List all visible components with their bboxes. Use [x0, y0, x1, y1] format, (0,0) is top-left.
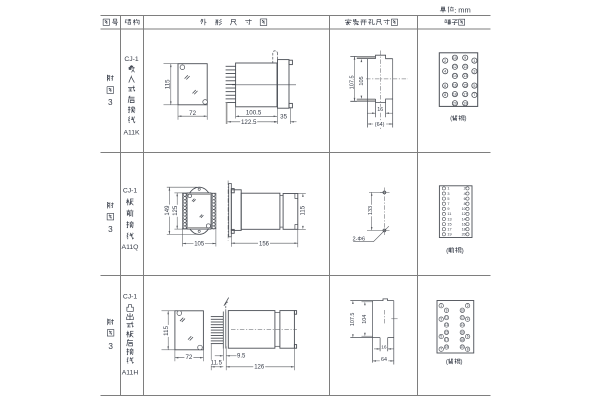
svg-text:2: 2	[464, 187, 466, 191]
svg-text:104: 104	[362, 315, 368, 324]
svg-text:18: 18	[461, 338, 465, 342]
svg-text:4: 4	[464, 192, 466, 196]
svg-text:(64): (64)	[375, 122, 385, 128]
svg-text:CJ-1: CJ-1	[124, 56, 139, 63]
svg-text:4: 4	[444, 69, 446, 73]
svg-text:72: 72	[185, 354, 192, 361]
svg-text:16: 16	[381, 345, 387, 351]
svg-text:126: 126	[254, 365, 265, 371]
svg-text:11: 11	[445, 316, 449, 320]
svg-text:11: 11	[447, 212, 451, 216]
svg-text:17: 17	[463, 92, 467, 96]
svg-text:11.5: 11.5	[211, 361, 223, 367]
svg-text:133: 133	[368, 206, 374, 215]
svg-text:15: 15	[445, 330, 449, 334]
svg-text:1: 1	[440, 304, 442, 308]
svg-text:16: 16	[461, 330, 465, 334]
svg-text:3: 3	[440, 317, 442, 321]
svg-text:1: 1	[447, 187, 449, 191]
svg-text:3: 3	[108, 98, 113, 107]
svg-text:18: 18	[462, 228, 466, 232]
svg-text:156: 156	[259, 241, 270, 247]
svg-text:12: 12	[462, 212, 466, 216]
svg-text:149: 149	[165, 205, 171, 216]
svg-text:4: 4	[467, 317, 469, 321]
svg-text:115: 115	[163, 325, 170, 335]
svg-text:7: 7	[473, 93, 475, 97]
svg-text:16: 16	[377, 107, 383, 113]
svg-text:2: 2	[467, 304, 469, 308]
svg-text:17: 17	[445, 338, 449, 342]
svg-text:A11H: A11H	[122, 369, 139, 376]
svg-text:10: 10	[462, 207, 466, 211]
svg-text:6: 6	[467, 335, 469, 339]
svg-text:19: 19	[463, 101, 467, 105]
svg-text:15: 15	[463, 83, 467, 87]
svg-text:11: 11	[463, 65, 467, 69]
svg-text:): )	[461, 247, 463, 254]
svg-text:9: 9	[447, 207, 449, 211]
svg-text:14: 14	[453, 74, 457, 78]
svg-text:6: 6	[444, 84, 446, 88]
svg-text:14: 14	[461, 323, 465, 327]
svg-text:1: 1	[473, 59, 475, 63]
svg-text::: :	[454, 6, 456, 15]
svg-text:72: 72	[189, 110, 196, 117]
svg-text:8: 8	[467, 347, 469, 351]
svg-text:10: 10	[461, 308, 465, 312]
svg-text:15: 15	[447, 222, 451, 226]
svg-text:107.5: 107.5	[350, 75, 356, 89]
svg-text:3: 3	[108, 342, 113, 351]
svg-text:107.5: 107.5	[350, 313, 356, 327]
svg-text:16: 16	[453, 83, 457, 87]
svg-text:5: 5	[440, 335, 442, 339]
svg-text:): )	[464, 115, 466, 122]
svg-text:10: 10	[453, 56, 457, 60]
svg-text:20: 20	[462, 233, 466, 237]
svg-text:9: 9	[464, 56, 466, 60]
svg-text:2-Φ6: 2-Φ6	[353, 236, 366, 242]
svg-text:7: 7	[447, 202, 449, 206]
svg-text:13: 13	[445, 323, 449, 327]
svg-text:19: 19	[445, 345, 449, 349]
svg-text:): )	[460, 358, 462, 365]
svg-text:17: 17	[447, 228, 451, 232]
svg-text:35: 35	[280, 113, 287, 120]
svg-text:105: 105	[359, 76, 365, 85]
svg-text:122.5: 122.5	[241, 119, 257, 126]
svg-text:100.5: 100.5	[246, 110, 262, 117]
svg-text:5: 5	[473, 84, 475, 88]
svg-text:A11Q: A11Q	[122, 244, 139, 251]
svg-text:125: 125	[173, 205, 179, 216]
svg-text:14: 14	[462, 217, 466, 221]
svg-text:8: 8	[464, 202, 466, 206]
svg-text:12: 12	[461, 316, 465, 320]
svg-text:20: 20	[461, 345, 465, 349]
svg-text:20: 20	[453, 101, 457, 105]
svg-text:3: 3	[473, 69, 475, 73]
svg-text:6: 6	[464, 197, 466, 201]
svg-text:5: 5	[447, 197, 449, 201]
svg-text:CJ-1: CJ-1	[123, 294, 138, 301]
svg-text:3: 3	[108, 225, 113, 234]
svg-text:9.5: 9.5	[237, 354, 246, 360]
svg-text:18: 18	[453, 92, 457, 96]
svg-text:mm: mm	[458, 6, 471, 15]
svg-text:16: 16	[462, 222, 466, 226]
svg-text:8: 8	[444, 93, 446, 97]
svg-text:13: 13	[463, 74, 467, 78]
svg-text:19: 19	[447, 233, 451, 237]
svg-text:115: 115	[164, 79, 171, 89]
svg-text:105: 105	[194, 242, 205, 248]
svg-text:13: 13	[447, 217, 451, 221]
svg-text:A11K: A11K	[123, 129, 140, 136]
svg-text:12: 12	[453, 65, 457, 69]
svg-text:2: 2	[444, 59, 446, 63]
svg-text:64: 64	[381, 357, 387, 363]
svg-text:CJ-1: CJ-1	[123, 187, 138, 194]
svg-text:3: 3	[447, 192, 449, 196]
svg-text:115: 115	[300, 205, 306, 215]
svg-text:9: 9	[446, 308, 448, 312]
svg-text:7: 7	[440, 347, 442, 351]
